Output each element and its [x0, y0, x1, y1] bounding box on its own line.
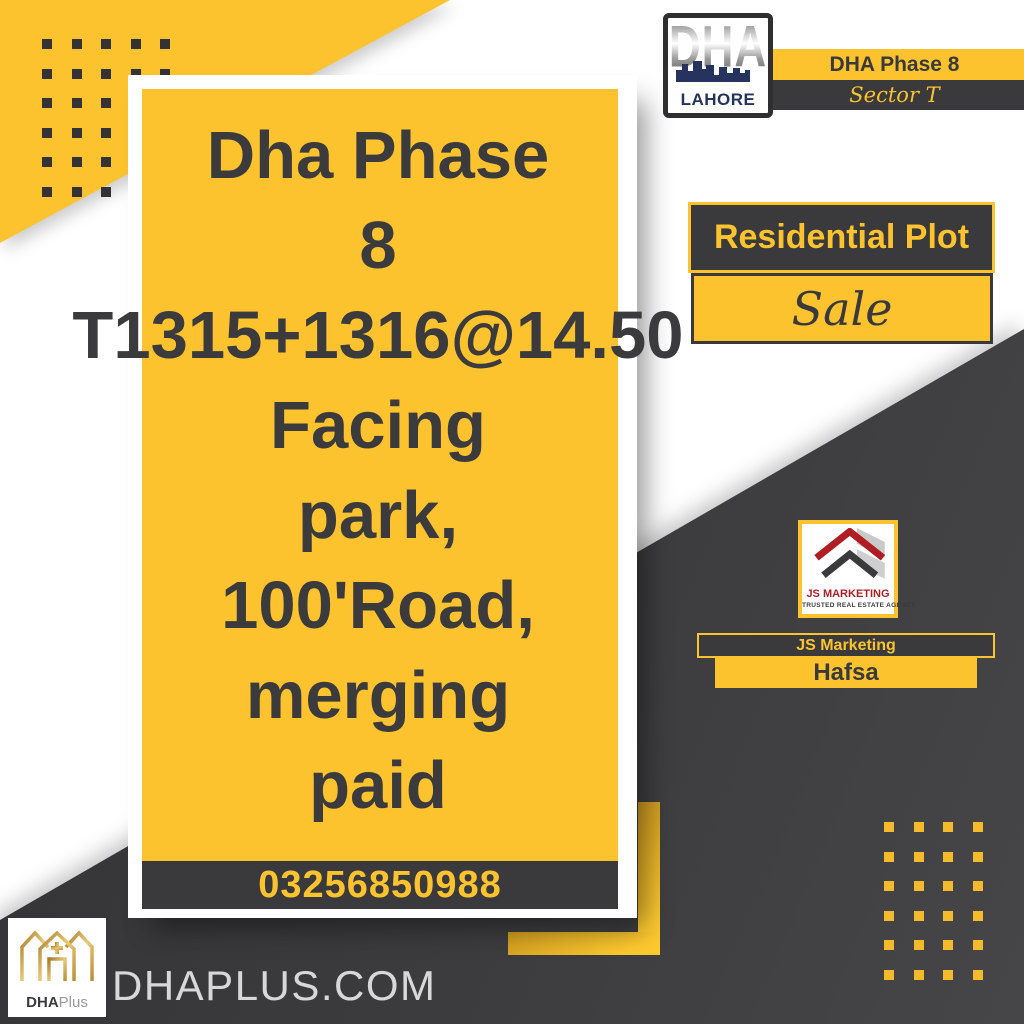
- headline-line: park,: [6, 471, 750, 561]
- headline-line: merging: [6, 651, 750, 741]
- lahore-label: LAHORE: [668, 90, 768, 110]
- agency-name: JS MARKETING: [802, 589, 894, 600]
- agent-name-bar: Hafsa: [715, 658, 977, 688]
- headline-line: T1315+1316@14.50: [6, 291, 750, 381]
- phone-bar: 03256850988: [142, 861, 618, 909]
- roof-icon: [806, 528, 890, 584]
- footer-logo: DHAPlus: [8, 918, 106, 1017]
- phase-banner: DHA Phase 8: [765, 49, 1024, 80]
- headline-line: paid: [6, 741, 750, 831]
- dha-lahore-logo: DHA LAHORE: [663, 13, 773, 118]
- ad-poster: 03256850988 Dha Phase 8 T1315+1316@14.50…: [0, 0, 1024, 1024]
- listing-headline: Dha Phase 8 T1315+1316@14.50 Facing park…: [6, 111, 750, 831]
- headline-line: 100'Road,: [6, 561, 750, 651]
- headline-line: Facing: [6, 381, 750, 471]
- crown-icon: [16, 923, 98, 985]
- dots-grid-yellow: [884, 822, 983, 980]
- skyline-icon: [676, 58, 750, 82]
- sector-banner: Sector T: [765, 80, 1024, 110]
- headline-line: Dha Phase: [6, 111, 750, 201]
- website-url: DHAPLUS.COM: [112, 962, 437, 1010]
- headline-line: 8: [6, 201, 750, 291]
- footer-logo-wordmark: DHAPlus: [8, 994, 106, 1011]
- accent-bracket-horizontal: [508, 932, 660, 955]
- agency-logo-card: JS MARKETING TRUSTED REAL ESTATE AGENCY: [798, 520, 898, 618]
- agency-tagline: TRUSTED REAL ESTATE AGENCY: [802, 602, 894, 609]
